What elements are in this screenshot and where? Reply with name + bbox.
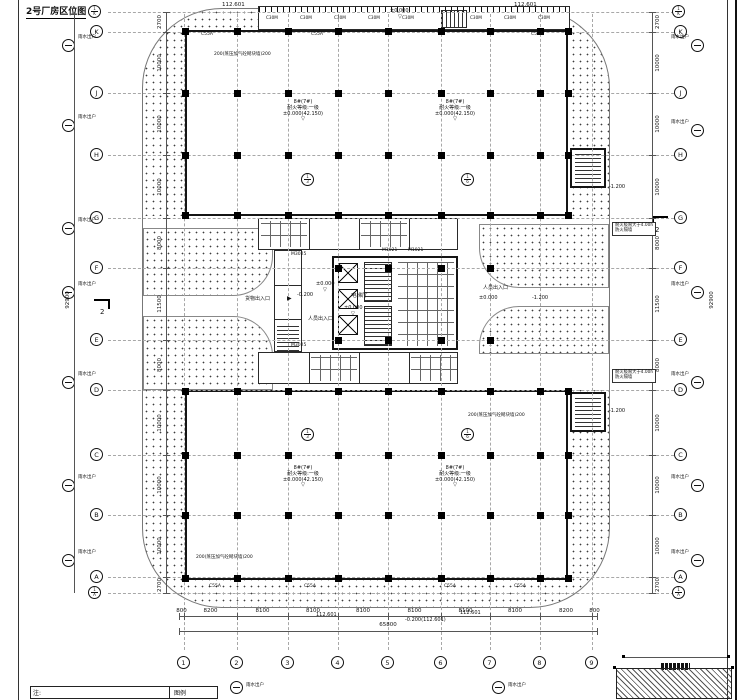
axis-bubble-left: B xyxy=(90,508,103,521)
dim-value: 2700 xyxy=(655,578,661,592)
annotation: C30M xyxy=(470,16,482,21)
column xyxy=(487,512,494,519)
stair-tower-upper-right xyxy=(570,148,606,188)
dim-value: 10000 xyxy=(157,537,163,555)
annotation: 2 xyxy=(655,226,659,234)
axis-bubble-bottom: 5 xyxy=(381,656,394,669)
axis-bubble-sub-right: 1K xyxy=(672,5,685,18)
column xyxy=(438,265,445,272)
dim-value: 8200 xyxy=(204,608,218,614)
grid-line-vertical xyxy=(388,14,389,650)
dim-tick xyxy=(163,577,170,578)
dim-value: 800 xyxy=(176,608,187,614)
sheet-border-right-outer xyxy=(735,0,737,700)
axis-bubble-right: C xyxy=(674,448,687,461)
column xyxy=(234,575,241,582)
axis-bubble-sub-right: 1A xyxy=(672,586,685,599)
rainwater-marker xyxy=(691,286,704,299)
dim-tick xyxy=(597,628,598,635)
annotation: 112.601 xyxy=(460,611,481,617)
axis-bubble-bottom: 7 xyxy=(483,656,496,669)
annotation: 耐火极限大于4.00h防火隔墙 xyxy=(612,222,656,236)
room-divider xyxy=(309,353,310,383)
column xyxy=(234,90,241,97)
dim-tick xyxy=(649,515,656,516)
annotation: -1.200 xyxy=(609,185,625,191)
legend-divider xyxy=(169,687,170,698)
column xyxy=(385,512,392,519)
column xyxy=(487,388,494,395)
dim-value: 8100 xyxy=(408,608,422,614)
column xyxy=(182,90,189,97)
dim-value: 10000 xyxy=(655,476,661,494)
dim-value: 2700 xyxy=(157,15,163,29)
dim-value: 800 xyxy=(589,608,600,614)
column xyxy=(385,337,392,344)
annotation: -0.200(112.601) xyxy=(405,618,446,624)
column xyxy=(285,575,292,582)
core-washrooms xyxy=(398,262,454,346)
column xyxy=(438,512,445,519)
stair-treads xyxy=(575,153,601,183)
annotation: C55A xyxy=(304,584,316,589)
dim-value: 10000 xyxy=(655,178,661,196)
room-divider xyxy=(409,353,410,383)
column xyxy=(565,90,572,97)
axis-bubble-right: F xyxy=(674,261,687,274)
column xyxy=(234,28,241,35)
axis-bubble-bottom: 4 xyxy=(331,656,344,669)
axis-bubble-bottom: 1 xyxy=(177,656,190,669)
axis-bubble-right: D xyxy=(674,383,687,396)
column xyxy=(385,265,392,272)
dim-line-left xyxy=(166,12,167,593)
annotation: C30M xyxy=(334,16,346,21)
section-marker-left xyxy=(108,299,110,309)
rainwater-label: 雨水出户 xyxy=(78,372,96,377)
rainwater-marker xyxy=(691,39,704,52)
courtyard-paving-right-lower xyxy=(479,306,609,354)
annotation: M3025 xyxy=(291,343,306,348)
annotation: ±0.000 xyxy=(479,296,498,302)
column xyxy=(182,452,189,459)
annotation: M1021 xyxy=(408,248,423,253)
stair-treads xyxy=(575,397,601,427)
axis-bubble-interior: 13 xyxy=(301,428,314,441)
courtyard-paving-right-upper xyxy=(479,224,609,288)
dim-tick xyxy=(649,218,656,219)
column xyxy=(537,90,544,97)
dim-value: 8000 xyxy=(157,358,163,372)
column xyxy=(487,337,494,344)
dim-value: 2700 xyxy=(655,15,661,29)
dim-value: 8100 xyxy=(256,608,270,614)
dim-value: 8100 xyxy=(356,608,370,614)
column xyxy=(335,265,342,272)
axis-bubble-interior: 13 xyxy=(301,173,314,186)
annotation: C30M xyxy=(402,16,414,21)
rainwater-label: 雨水出户 xyxy=(78,282,96,287)
annotation: ▽ xyxy=(323,288,327,294)
rainwater-marker xyxy=(230,681,243,694)
drawing-sheet: 注: 图例 2号厂房区位图 123456789KKJJHHGGFFEEDDCCB… xyxy=(0,0,750,700)
room-divider xyxy=(359,219,360,249)
axis-bubble-right: G xyxy=(674,211,687,224)
annotation: -1.200 xyxy=(532,296,548,302)
column xyxy=(335,512,342,519)
column xyxy=(537,512,544,519)
axis-bubble-bottom: 2 xyxy=(230,656,243,669)
column xyxy=(565,212,572,219)
column xyxy=(385,388,392,395)
dim-tick xyxy=(649,155,656,156)
dim-total-left: 92900 xyxy=(65,291,71,309)
column xyxy=(565,452,572,459)
annotation: 8#(7#)耐火等级:一级±0.000(42.150)▽ xyxy=(435,466,475,489)
rainwater-label: 雨水出户 xyxy=(671,282,689,287)
stair-tower-lower-right xyxy=(570,392,606,432)
column xyxy=(487,90,494,97)
keyplan-dim-dot xyxy=(622,655,625,658)
room-divider xyxy=(359,353,360,383)
rainwater-label: 雨水出户 xyxy=(246,683,264,688)
keyplan-corner-dot xyxy=(613,666,616,669)
grid-line-vertical xyxy=(540,14,541,650)
column xyxy=(537,152,544,159)
axis-bubble-bottom: 9 xyxy=(585,656,598,669)
annotation: 8#(7#)耐火等级:一级±0.000(42.150)▽ xyxy=(435,100,475,123)
annotation: 112.601 xyxy=(514,2,537,8)
dim-tick xyxy=(288,613,289,620)
dim-tick xyxy=(163,340,170,341)
column xyxy=(537,212,544,219)
column xyxy=(438,575,445,582)
column xyxy=(335,575,342,582)
rainwater-label: 雨水出户 xyxy=(78,475,96,480)
rainwater-marker xyxy=(691,124,704,137)
column xyxy=(438,212,445,219)
rainwater-label: 雨水出户 xyxy=(508,683,526,688)
column xyxy=(537,388,544,395)
dim-tick xyxy=(649,12,656,13)
dim-line-right xyxy=(652,12,653,593)
annotation: C55A xyxy=(514,584,526,589)
column xyxy=(285,452,292,459)
axis-bubble-left: C xyxy=(90,448,103,461)
column xyxy=(285,152,292,159)
column xyxy=(565,152,572,159)
legend-label: 图例 xyxy=(174,688,186,697)
rainwater-label: 雨水出户 xyxy=(78,115,96,120)
axis-bubble-bottom: 6 xyxy=(434,656,447,669)
keyplan-site xyxy=(616,668,732,699)
annotation: M3025 xyxy=(291,252,306,257)
dim-tick xyxy=(179,628,180,635)
column xyxy=(234,388,241,395)
rainwater-label: 雨水出户 xyxy=(671,120,689,125)
grid-line-vertical xyxy=(338,14,339,650)
annotation: 8#(7#)耐火等级:一级±0.000(42.150)▽ xyxy=(283,100,323,123)
axis-bubble-right: J xyxy=(674,86,687,99)
room-divider xyxy=(409,219,410,249)
column xyxy=(182,388,189,395)
dim-tick xyxy=(388,613,389,620)
dim-value: 11500 xyxy=(655,295,661,313)
annotation: 8#(7#)耐火等级:一级±0.000(42.150)▽ xyxy=(283,466,323,489)
column xyxy=(335,337,342,344)
rainwater-label: 雨水出户 xyxy=(671,475,689,480)
rainwater-marker xyxy=(492,681,505,694)
grid-line-sub xyxy=(108,593,674,594)
column xyxy=(385,152,392,159)
dim-tick xyxy=(490,613,491,620)
column xyxy=(487,28,494,35)
washroom-fixtures xyxy=(311,355,357,381)
dim-line-bottom-total xyxy=(179,631,597,632)
annotation: 112.601 xyxy=(316,613,337,619)
rainwater-label: 雨水出户 xyxy=(671,372,689,377)
column xyxy=(537,575,544,582)
keyplan-corner-dot xyxy=(731,666,734,669)
column xyxy=(385,575,392,582)
column xyxy=(565,388,572,395)
annotation: C55A xyxy=(531,32,543,37)
column xyxy=(234,152,241,159)
column xyxy=(335,90,342,97)
axis-bubble-left: D xyxy=(90,383,103,396)
column xyxy=(438,90,445,97)
annotation: 耐火极限大于4.00h防火隔墙 xyxy=(612,369,656,383)
column xyxy=(335,152,342,159)
dim-tick xyxy=(649,390,656,391)
dim-value: 10000 xyxy=(157,115,163,133)
column xyxy=(335,212,342,219)
dim-value: 8000 xyxy=(655,236,661,250)
axis-bubble-sub-left: 1K xyxy=(88,5,101,18)
keyplan-dim-dot xyxy=(727,655,730,658)
rainwater-label: 雨水出户 xyxy=(78,218,96,223)
column xyxy=(234,212,241,219)
axis-bubble-left: A xyxy=(90,570,103,583)
column xyxy=(285,28,292,35)
annotation: C30M xyxy=(538,16,550,21)
dim-tick xyxy=(649,593,656,594)
column xyxy=(438,28,445,35)
column xyxy=(565,512,572,519)
annotation: C30M xyxy=(266,16,278,21)
dim-tick xyxy=(163,218,170,219)
column xyxy=(285,512,292,519)
column xyxy=(385,212,392,219)
column xyxy=(385,28,392,35)
washroom-fixtures xyxy=(411,355,457,381)
axis-bubble-right: H xyxy=(674,148,687,161)
column xyxy=(335,452,342,459)
dim-tick xyxy=(163,32,170,33)
column xyxy=(487,152,494,159)
annotation: C55A xyxy=(444,584,456,589)
annotation: 货物出入口 xyxy=(245,297,270,303)
column xyxy=(182,28,189,35)
column xyxy=(438,452,445,459)
grid-line-vertical xyxy=(592,14,593,650)
rainwater-label: 雨水出户 xyxy=(78,35,96,40)
annotation: 200(蒸压加气砼砌块墙)200 xyxy=(196,555,253,560)
annotation: -0.200 xyxy=(297,293,313,299)
column xyxy=(182,152,189,159)
axis-bubble-right: A xyxy=(674,570,687,583)
washroom-fixtures xyxy=(361,221,407,247)
sheet-border-right-inner xyxy=(727,0,728,700)
dim-tick xyxy=(163,455,170,456)
dim-total-bottom: 65800 xyxy=(379,622,397,628)
dim-tick xyxy=(163,593,170,594)
column xyxy=(285,90,292,97)
annotation: ▶ xyxy=(287,296,292,303)
column xyxy=(335,388,342,395)
annotation: ▽ xyxy=(351,312,355,318)
dim-tick xyxy=(649,340,656,341)
dim-value: 10000 xyxy=(157,178,163,196)
annotation: C30M xyxy=(300,16,312,21)
axis-bubble-interior: 16 xyxy=(461,428,474,441)
dim-tick xyxy=(540,613,541,620)
dim-total-right: 92900 xyxy=(709,291,715,309)
column xyxy=(182,212,189,219)
grid-line-vertical xyxy=(490,14,491,650)
axis-bubble-left: H xyxy=(90,148,103,161)
dim-tick xyxy=(649,268,656,269)
column xyxy=(565,575,572,582)
annotation: C30M xyxy=(368,16,380,21)
washroom-fixtures xyxy=(261,221,307,247)
column xyxy=(285,212,292,219)
dim-value: 10000 xyxy=(655,115,661,133)
dim-value: 10000 xyxy=(157,54,163,72)
dim-value: 8100 xyxy=(508,608,522,614)
dim-value: 2700 xyxy=(157,578,163,592)
column xyxy=(438,388,445,395)
dim-tick xyxy=(163,515,170,516)
annotation: 人员出入口 xyxy=(483,286,508,292)
column xyxy=(537,452,544,459)
rainwater-label: 雨水出户 xyxy=(78,550,96,555)
column xyxy=(234,512,241,519)
keyplan-dim-line xyxy=(624,657,728,658)
dim-tick xyxy=(237,613,238,620)
dim-tick xyxy=(649,32,656,33)
annotation: C55A xyxy=(209,584,221,589)
column xyxy=(487,212,494,219)
annotation: 112.601 xyxy=(222,2,245,8)
dim-tick xyxy=(338,613,339,620)
dim-value: 8200 xyxy=(559,608,573,614)
dim-value: 10000 xyxy=(655,54,661,72)
column xyxy=(182,575,189,582)
courtyard-paving-left-lower xyxy=(143,316,273,390)
dim-value: 10000 xyxy=(655,414,661,432)
dim-tick xyxy=(163,390,170,391)
annotation: 人员出入口 xyxy=(308,317,333,323)
dim-tick xyxy=(163,155,170,156)
column xyxy=(385,90,392,97)
notes-label: 注: xyxy=(33,688,41,697)
column xyxy=(182,512,189,519)
dim-line-left-total xyxy=(74,12,75,593)
notes-box: 注: 图例 xyxy=(30,686,218,699)
dim-tick xyxy=(649,455,656,456)
room-divider xyxy=(309,219,310,249)
axis-bubble-right: B xyxy=(674,508,687,521)
axis-bubble-sub-left: 1A xyxy=(88,586,101,599)
column xyxy=(285,388,292,395)
axis-bubble-right: E xyxy=(674,333,687,346)
dim-value: 10000 xyxy=(655,537,661,555)
rainwater-label: 雨水出户 xyxy=(671,550,689,555)
column xyxy=(487,452,494,459)
dim-tick xyxy=(163,268,170,269)
dim-value: 10000 xyxy=(157,414,163,432)
axis-bubble-interior: 16 xyxy=(461,173,474,186)
sheet-border-left xyxy=(18,0,19,700)
column xyxy=(438,152,445,159)
axis-bubble-bottom: 8 xyxy=(533,656,546,669)
annotation: 2 xyxy=(100,308,104,316)
elevator-shaft xyxy=(338,315,358,335)
annotation: C30M xyxy=(504,16,516,21)
annotation: 200(蒸压加气砼砌块墙)200 xyxy=(468,413,525,418)
annotation: C55A xyxy=(201,32,213,37)
annotation: 200(蒸压加气砼砌块墙)200 xyxy=(214,52,271,57)
annotation: C55A xyxy=(311,32,323,37)
rainwater-marker xyxy=(691,376,704,389)
column xyxy=(234,452,241,459)
column xyxy=(565,28,572,35)
drawing-title: 2号厂房区位图 xyxy=(26,4,86,19)
axis-bubble-bottom: 3 xyxy=(281,656,294,669)
axis-bubble-left: E xyxy=(90,333,103,346)
column xyxy=(487,265,494,272)
column xyxy=(438,337,445,344)
annotation: 电梯厅 xyxy=(351,293,368,299)
dim-tick xyxy=(649,93,656,94)
axis-bubble-left: F xyxy=(90,261,103,274)
dim-value: 10000 xyxy=(157,476,163,494)
grid-line-vertical xyxy=(184,14,185,650)
lower-hall xyxy=(185,390,568,580)
dim-value: 11500 xyxy=(157,295,163,313)
axis-bubble-left: J xyxy=(90,86,103,99)
column xyxy=(385,452,392,459)
dim-value: 8000 xyxy=(157,236,163,250)
annotation: -1.200 xyxy=(609,409,625,415)
column xyxy=(487,575,494,582)
upper-hall xyxy=(185,30,568,216)
annotation: M1021 xyxy=(382,248,397,253)
dim-tick xyxy=(163,12,170,13)
rainwater-marker xyxy=(691,554,704,567)
dim-tick xyxy=(163,93,170,94)
column xyxy=(335,28,342,35)
rainwater-label: 雨水出户 xyxy=(671,35,689,40)
rainwater-marker xyxy=(691,479,704,492)
